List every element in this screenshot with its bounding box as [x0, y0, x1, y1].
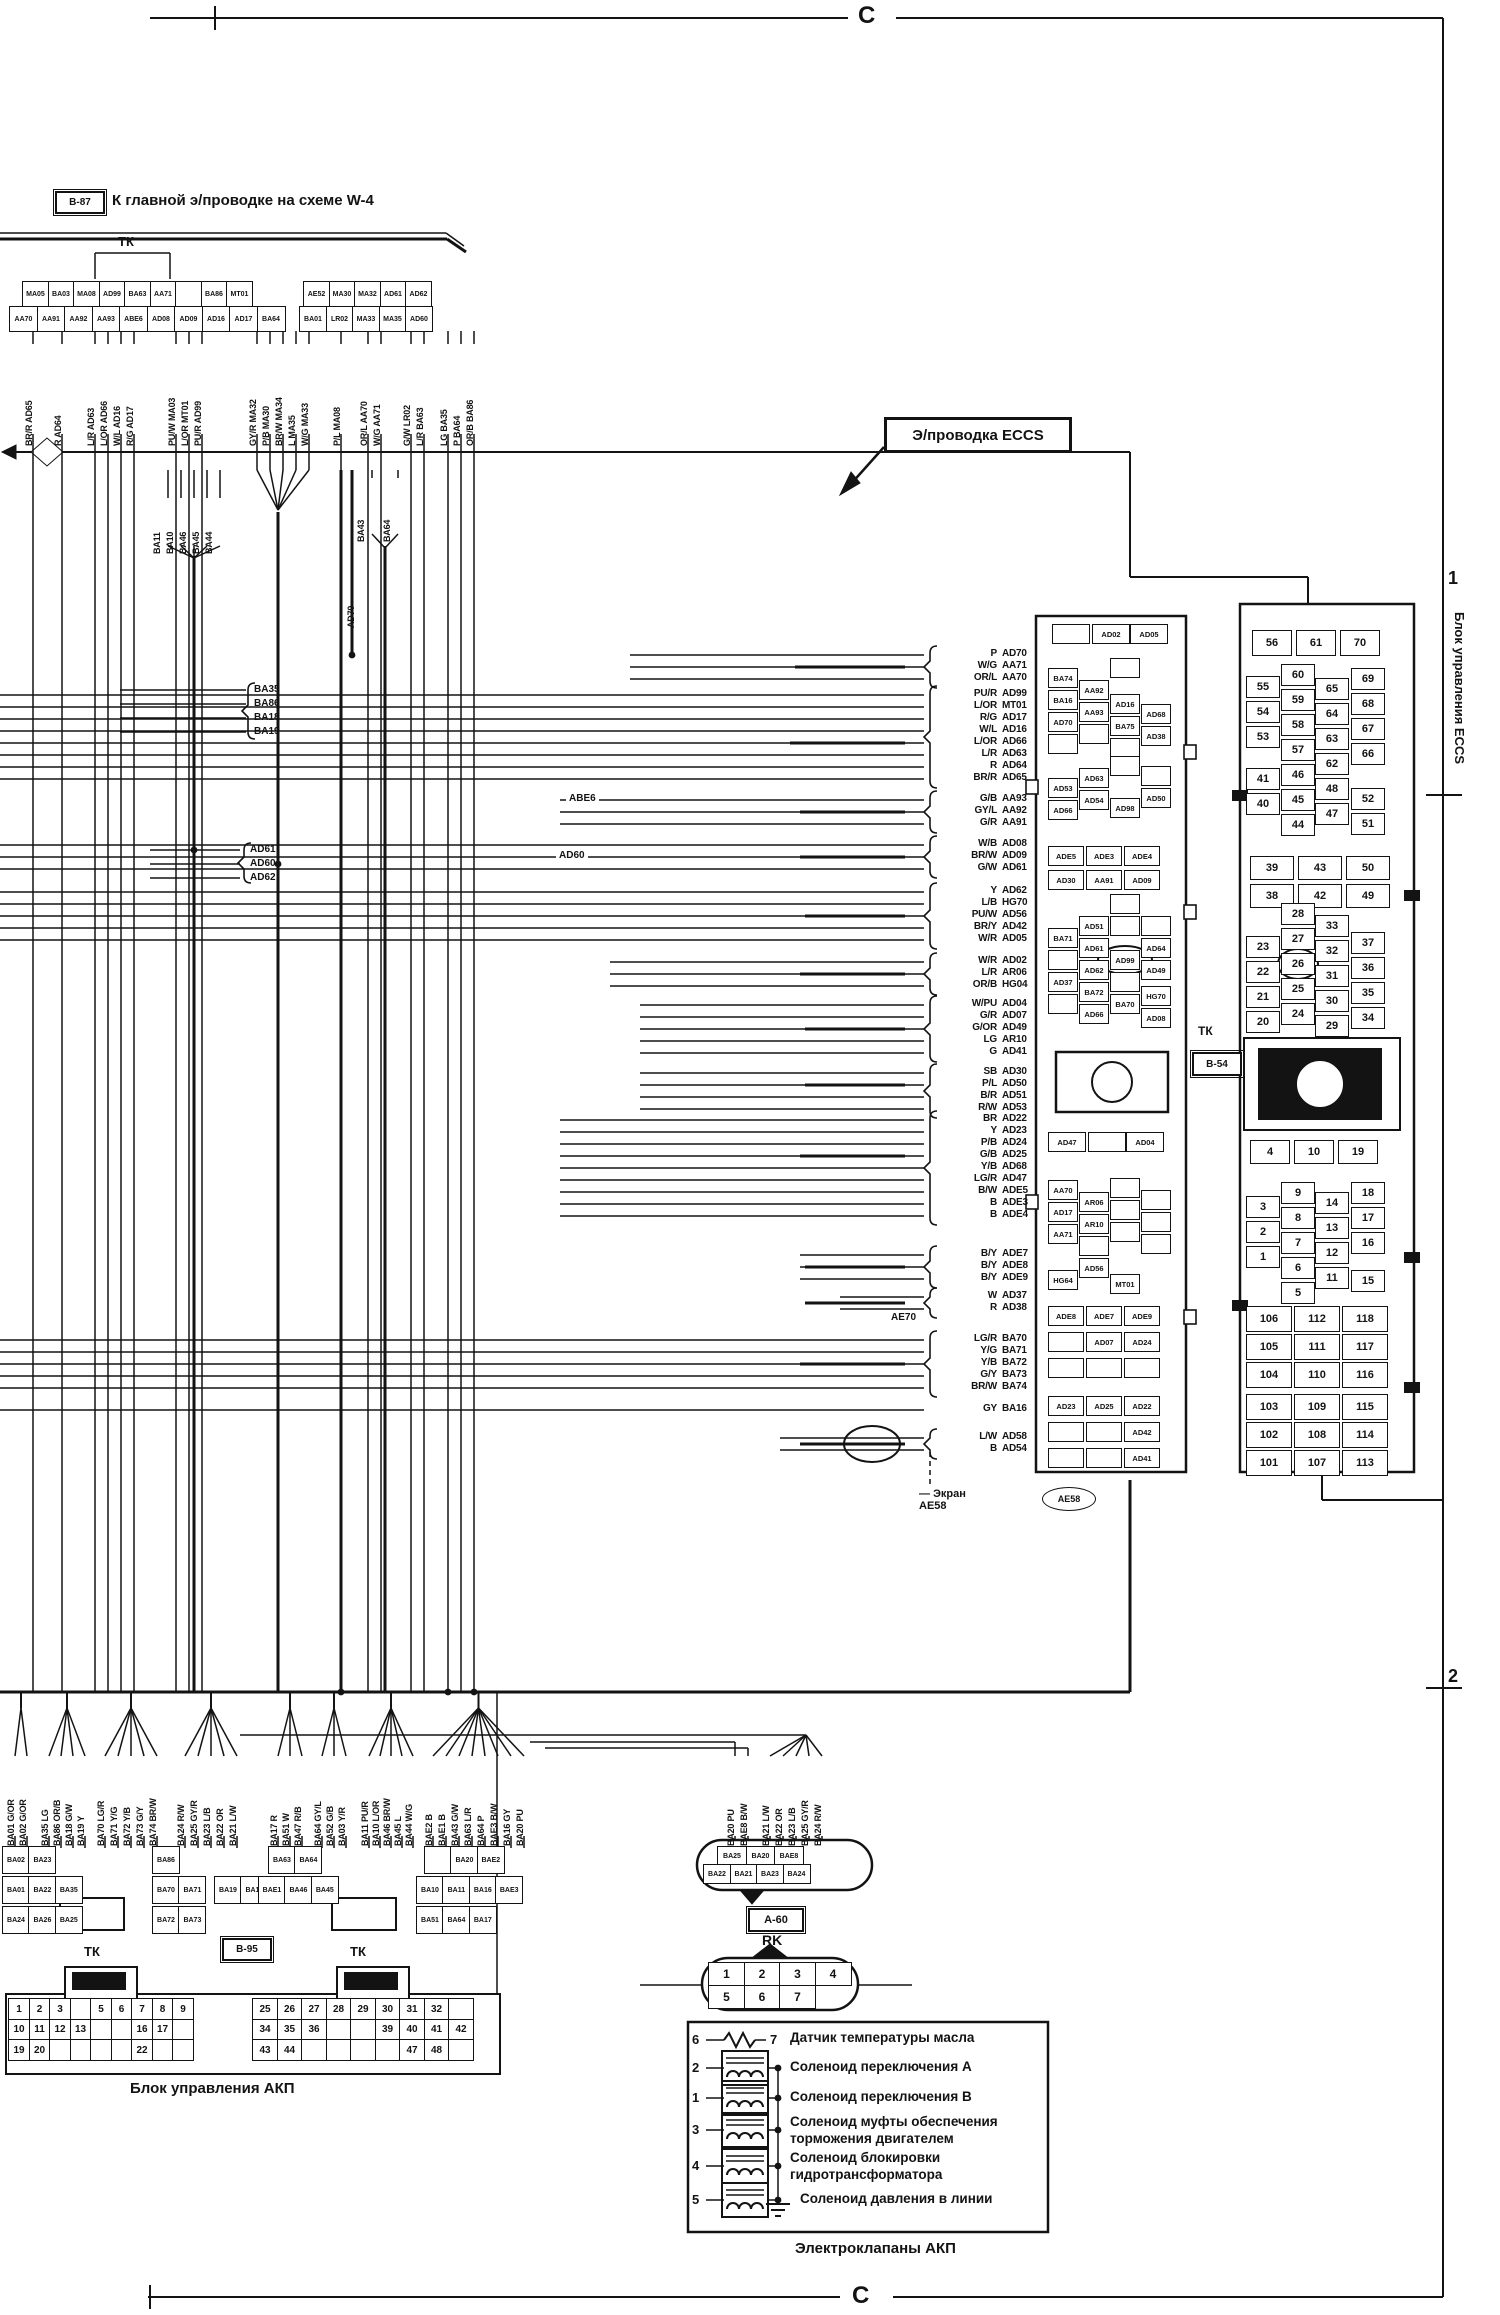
mid-wire-label: BA45	[191, 532, 201, 554]
ecu-connector-cell: AA92	[1079, 680, 1109, 700]
eccs-pin: 43	[1298, 856, 1342, 880]
wire-code: AR06	[1002, 967, 1040, 978]
mid-wire-label: AD60	[250, 858, 276, 869]
ecu-connector-cell: BA70	[1110, 994, 1140, 1014]
bottom-wire-label: BA20 PU	[726, 1809, 736, 1846]
main-harness-cell: MA32	[354, 281, 381, 307]
solenoid-pin-number: 2	[692, 2060, 699, 2075]
wire-code: B/Y	[981, 1248, 997, 1259]
main-harness-cell: AA92	[64, 306, 93, 332]
wire-code: Y/B	[981, 1161, 997, 1172]
bottom-connector-cell: BA19	[214, 1876, 242, 1904]
eccs-pin: 104	[1246, 1362, 1292, 1388]
akp-pin	[70, 1998, 92, 2020]
akp-pin	[350, 2019, 376, 2041]
akp-pin: 26	[277, 1998, 303, 2020]
eccs-pin: 36	[1351, 957, 1385, 979]
akp-pin	[375, 2039, 401, 2061]
akp-pin: 47	[399, 2039, 425, 2061]
ecu-connector-cell	[1110, 916, 1140, 936]
bottom-wire-label: BA17 R	[269, 1815, 279, 1846]
wire-code: G/R	[980, 1010, 997, 1021]
mid-wire-label: AD61	[250, 844, 276, 855]
eccs-wire-item: P/LAD50	[936, 1078, 1040, 1089]
ecu-connector-cell	[1141, 1190, 1171, 1210]
main-harness-cell: LR02	[326, 306, 354, 332]
bottom-wire-label: BA03 Y/R	[337, 1807, 347, 1846]
eccs-pin: 56	[1252, 630, 1292, 656]
bottom-wire-label: BA24 R/W	[176, 1805, 186, 1846]
wire-code: BA74	[1002, 1381, 1040, 1392]
ecu-connector-cell	[1110, 738, 1140, 758]
bottom-connector-cell: BA63	[268, 1846, 296, 1874]
eccs-pin: 108	[1294, 1422, 1340, 1448]
ecu-connector-cell	[1141, 916, 1171, 936]
wire-code: G/B	[980, 1149, 997, 1160]
tk-label-akp-right: ТК	[350, 1944, 366, 1959]
wire-code: GY	[983, 1403, 997, 1414]
eccs-pin: 15	[1351, 1270, 1385, 1292]
eccs-wire-item: G/RAA91	[936, 817, 1040, 828]
bottom-wire-label: BA23 L/B	[202, 1808, 212, 1846]
mid-wire-label: BA44	[204, 532, 214, 554]
eccs-wire-item: Y/BAD68	[936, 1161, 1040, 1172]
wire-code: R	[990, 1302, 997, 1313]
connector-key-fill	[72, 1972, 126, 1990]
wire-code: AD54	[1002, 1443, 1040, 1454]
eccs-pin: 106	[1246, 1306, 1292, 1332]
akp-pin	[301, 2039, 327, 2061]
eccs-pin: 3	[1246, 1196, 1280, 1218]
eccs-harness-note: Э/проводка ECCS	[884, 417, 1072, 453]
mid-wire-label: BA19	[254, 726, 280, 737]
bottom-wire-label: BA23 L/B	[787, 1808, 797, 1846]
top-wire-label: BR/W MA34	[274, 397, 284, 446]
eccs-pin: 54	[1246, 701, 1280, 723]
wire-code: AA91	[1002, 817, 1040, 828]
ecu-connector-cell	[1141, 1234, 1171, 1254]
grid-row-marker-1: 1	[1448, 568, 1458, 589]
ecu-connector-cell: AD63	[1079, 768, 1109, 788]
eccs-wire-item: RAD38	[936, 1302, 1040, 1313]
bottom-wire-label: BA63 L/R	[463, 1808, 473, 1846]
wire-code: W/PU	[972, 998, 997, 1009]
wire-code: LG/R	[974, 1173, 997, 1184]
wire-code: R/G	[980, 712, 997, 723]
main-harness-cell: AA91	[37, 306, 66, 332]
ecu-connector-cell: HG70	[1141, 986, 1171, 1006]
ecu-connector-cell	[1086, 1448, 1122, 1468]
wire-code: AD56	[1002, 909, 1040, 920]
wire-code: AD62	[1002, 885, 1040, 896]
solenoid-name: Датчик температуры масла	[790, 2030, 974, 2045]
ecu-connector-cell: AD98	[1110, 798, 1140, 818]
eccs-pin: 26	[1281, 953, 1315, 975]
wire-code: AD50	[1002, 1078, 1040, 1089]
ecu-connector-cell: AD22	[1124, 1396, 1160, 1416]
akp-pin: 16	[131, 2019, 153, 2041]
eccs-wire-item: YAD23	[936, 1125, 1040, 1136]
akp-pin: 8	[152, 1998, 174, 2020]
ecu-connector-cell: AD41	[1124, 1448, 1160, 1468]
eccs-pin: 103	[1246, 1394, 1292, 1420]
ecu-connector-cell	[1110, 1178, 1140, 1198]
top-wire-label: W/G AA71	[372, 404, 382, 446]
ecu-connector-cell: AD05	[1130, 624, 1168, 644]
eccs-wire-item: B/YADE7	[936, 1248, 1040, 1259]
main-harness-cell: AD61	[380, 281, 407, 307]
ecu-connector-cell: AR06	[1079, 1192, 1109, 1212]
wire-code: AA70	[1002, 672, 1040, 683]
wire-code: G/W	[978, 862, 997, 873]
wire-code: PU/R	[974, 688, 997, 699]
eccs-pin: 25	[1281, 978, 1315, 1000]
bottom-wire-label: BA21 L/W	[761, 1806, 771, 1846]
screen-shield-label: — Экран AE58	[916, 1488, 969, 1512]
wire-code: L/R	[981, 967, 997, 978]
eccs-wire-item: Y/GBA71	[936, 1345, 1040, 1356]
eccs-wire-item: B/RAD51	[936, 1090, 1040, 1101]
eccs-pin: 115	[1342, 1394, 1388, 1420]
wire-code: AD58	[1002, 1431, 1040, 1442]
eccs-wire-item: R/WAD53	[936, 1102, 1040, 1113]
ecu-connector-cell: AD49	[1141, 960, 1171, 980]
ecu-connector-cell	[1086, 1422, 1122, 1442]
eccs-pin: 112	[1294, 1306, 1340, 1332]
bottom-wire-label: BA86 OR/B	[52, 1800, 62, 1846]
wire-code: LG	[984, 1034, 998, 1045]
rk-cell: BAE8	[774, 1846, 804, 1866]
solenoid-pin-number: 5	[692, 2192, 699, 2207]
ecu-connector-cell: AD30	[1048, 870, 1084, 890]
ecu-connector-cell: AA93	[1079, 702, 1109, 722]
eccs-wire-item: G/BAA93	[936, 793, 1040, 804]
wire-code: W/B	[978, 838, 997, 849]
eccs-pin: 5	[1281, 1282, 1315, 1304]
wire-code: GY/L	[974, 805, 997, 816]
akp-unit-caption: Блок управления АКП	[130, 2080, 295, 2097]
rk-connector-label: RK	[762, 1932, 782, 1948]
eccs-pin: 2	[1246, 1221, 1280, 1243]
eccs-pin: 40	[1246, 793, 1280, 815]
eccs-pin: 68	[1351, 693, 1385, 715]
akp-pin: 44	[277, 2039, 303, 2061]
eccs-pin: 114	[1342, 1422, 1388, 1448]
ecu-connector-cell: AD02	[1092, 624, 1130, 644]
mid-wire-label: BA35	[254, 684, 280, 695]
eccs-pin: 30	[1315, 990, 1349, 1012]
wire-code: Y/G	[980, 1345, 997, 1356]
akp-pin: 32	[424, 1998, 450, 2020]
eccs-pin: 67	[1351, 718, 1385, 740]
main-harness-cell: MA08	[73, 281, 100, 307]
eccs-pin: 105	[1246, 1334, 1292, 1360]
bottom-connector-cell: BA51	[416, 1906, 444, 1934]
ecu-connector-cell: AD56	[1079, 1258, 1109, 1278]
ecu-connector-cell: BA16	[1048, 690, 1078, 710]
akp-pin: 39	[375, 2019, 401, 2041]
ecu-connector-cell	[1048, 734, 1078, 754]
wire-code: AD42	[1002, 921, 1040, 932]
eccs-pin: 55	[1246, 676, 1280, 698]
eccs-pin: 18	[1351, 1182, 1385, 1204]
akp-pin: 2	[29, 1998, 51, 2020]
ecu-connector-cell: AD62	[1079, 960, 1109, 980]
eccs-wire-item: GAD41	[936, 1046, 1040, 1057]
top-wire-label: L/R BA63	[415, 408, 425, 446]
rk-pin: 7	[779, 1985, 816, 2009]
akp-pin: 13	[70, 2019, 92, 2041]
wire-code: B/Y	[981, 1260, 997, 1271]
ecu-connector-cell	[1110, 756, 1140, 776]
main-harness-cell: AA71	[150, 281, 177, 307]
rk-cell: BA22	[703, 1864, 731, 1884]
ecu-connector-cell	[1048, 1448, 1084, 1468]
eccs-pin: 13	[1315, 1217, 1349, 1239]
eccs-wire-item: LG/RBA70	[936, 1333, 1040, 1344]
eccs-pin: 8	[1281, 1207, 1315, 1229]
ecu-connector-cell: AR10	[1079, 1214, 1109, 1234]
eccs-pin: 29	[1315, 1015, 1349, 1037]
bottom-wire-label: BA24 R/W	[813, 1805, 823, 1846]
wire-code: B	[990, 1197, 997, 1208]
wire-code: BR/W	[971, 850, 997, 861]
solenoid-pin-number: 7	[770, 2032, 777, 2047]
main-harness-cell: AD62	[405, 281, 432, 307]
wire-code: G/Y	[980, 1369, 997, 1380]
top-section-marker: C	[858, 2, 875, 30]
wire-code: P	[991, 648, 997, 659]
eccs-wire-item: SBAD30	[936, 1066, 1040, 1077]
bottom-wire-label: BA46 BR/W	[382, 1798, 392, 1846]
ecu-connector-cell	[1048, 1332, 1084, 1352]
eccs-pin: 111	[1294, 1334, 1340, 1360]
eccs-wire-item: PU/WAD56	[936, 909, 1040, 920]
bottom-wire-label: BA73 G/Y	[135, 1807, 145, 1846]
eccs-pin: 20	[1246, 1011, 1280, 1033]
wire-code: BR	[983, 1113, 997, 1124]
bottom-wire-label: BA16 GY	[502, 1809, 512, 1846]
top-wire-label: P/B MA30	[261, 406, 271, 446]
akp-pin: 25	[252, 1998, 278, 2020]
bottom-wire-label: BA35 LG	[40, 1809, 50, 1846]
main-harness-cell: MA33	[352, 306, 380, 332]
ecu-connector-cell: ADE9	[1124, 1306, 1160, 1326]
bottom-connector-cell: BA02	[2, 1846, 30, 1874]
wire-code: BA72	[1002, 1357, 1040, 1368]
bottom-connector-cell: BA64	[442, 1906, 470, 1934]
eccs-pin: 60	[1281, 664, 1315, 686]
bottom-wire-label: BA25 GY/R	[800, 1800, 810, 1846]
bottom-connector-cell: BA10	[416, 1876, 444, 1904]
eccs-wire-item: BADE4	[936, 1209, 1040, 1220]
eccs-wire-item: L/ORAD66	[936, 736, 1040, 747]
wire-code: AD49	[1002, 1022, 1040, 1033]
ecu-connector-cell: AD42	[1124, 1422, 1160, 1442]
ecu-connector-cell: AD47	[1048, 1132, 1086, 1152]
top-wire-label: P/L MA08	[332, 407, 342, 446]
bottom-connector-cell: BA73	[178, 1906, 206, 1934]
ecu-connector-cell: AD51	[1079, 916, 1109, 936]
wire-code: ADE8	[1002, 1260, 1040, 1271]
bottom-connector-cell: BA45	[311, 1876, 339, 1904]
reference-box-b87: B-87	[55, 191, 105, 214]
bottom-connector-cell: BAE3	[495, 1876, 523, 1904]
ecu-connector-cell: ADE7	[1086, 1306, 1122, 1326]
grid-row-marker-2: 2	[1448, 1666, 1458, 1687]
wire-code: Y	[991, 1125, 997, 1136]
bottom-connector-cell: BA71	[178, 1876, 206, 1904]
bottom-connector-cell: BA46	[284, 1876, 312, 1904]
wire-code: MT01	[1002, 700, 1040, 711]
eccs-pin: 11	[1315, 1267, 1349, 1289]
eccs-pin: 28	[1281, 903, 1315, 925]
ecu-connector-cell: AD09	[1124, 870, 1160, 890]
wire-code: AR10	[1002, 1034, 1040, 1045]
top-wire-label: L MA35	[287, 415, 297, 446]
ecu-connector-cell	[1110, 1200, 1140, 1220]
ecu-connector-cell: AD07	[1086, 1332, 1122, 1352]
wire-code: AD02	[1002, 955, 1040, 966]
ecu-connector-cell: MT01	[1110, 1274, 1140, 1294]
eccs-pin: 33	[1315, 915, 1349, 937]
eccs-pin: 49	[1346, 884, 1390, 908]
wire-code: AD08	[1002, 838, 1040, 849]
eccs-pin: 63	[1315, 728, 1349, 750]
eccs-wire-item: W/BAD08	[936, 838, 1040, 849]
bottom-section-marker: C	[852, 2282, 869, 2310]
bottom-connector-cell: BAE2	[477, 1846, 505, 1874]
solenoid-pin-number: 1	[692, 2090, 699, 2105]
bottom-wire-label: BA47 R/B	[293, 1807, 303, 1846]
bottom-wire-label: BA52 G/B	[325, 1806, 335, 1846]
bottom-connector-cell: BA22	[28, 1876, 56, 1904]
eccs-pin: 39	[1250, 856, 1294, 880]
bottom-connector-cell: BAE1	[258, 1876, 286, 1904]
akp-pin: 42	[448, 2019, 474, 2041]
eccs-pin: 7	[1281, 1232, 1315, 1254]
eccs-pin: 53	[1246, 726, 1280, 748]
eccs-pin: 117	[1342, 1334, 1388, 1360]
wire-code: ADE3	[1002, 1197, 1040, 1208]
wire-code: L/OR	[974, 736, 997, 747]
mid-wire-label: AD62	[250, 872, 276, 883]
akp-pin: 36	[301, 2019, 327, 2041]
eccs-pin: 57	[1281, 739, 1315, 761]
wire-code: BA71	[1002, 1345, 1040, 1356]
bottom-connector-cell: BA35	[55, 1876, 83, 1904]
wire-code: AD38	[1002, 1302, 1040, 1313]
rk-pin: 2	[744, 1962, 781, 1986]
wire-code: BA16	[1002, 1403, 1040, 1414]
ecu-connector-cell: AD68	[1141, 704, 1171, 724]
eccs-wire-item: R/GAD17	[936, 712, 1040, 723]
eccs-pin: 6	[1281, 1257, 1315, 1279]
eccs-pin: 37	[1351, 932, 1385, 954]
eccs-pin: 50	[1346, 856, 1390, 880]
akp-pin: 27	[301, 1998, 327, 2020]
ecu-connector-cell: AA91	[1086, 870, 1122, 890]
eccs-pin: 64	[1315, 703, 1349, 725]
bottom-connector-cell: BA24	[2, 1906, 30, 1934]
eccs-wire-item: YAD62	[936, 885, 1040, 896]
eccs-pin: 48	[1315, 778, 1349, 800]
eccs-pin: 17	[1351, 1207, 1385, 1229]
akp-pin: 10	[8, 2019, 30, 2041]
wire-code: B/R	[980, 1090, 997, 1101]
eccs-pin: 47	[1315, 803, 1349, 825]
reference-box-b95: B-95	[222, 1938, 272, 1961]
bottom-wire-label: BA22 OR	[215, 1808, 225, 1846]
eccs-pin: 44	[1281, 814, 1315, 836]
ecu-connector-cell: BA74	[1048, 668, 1078, 688]
mid-wire-label: BA11	[152, 532, 162, 554]
ecu-connector-cell: AD37	[1048, 972, 1078, 992]
mid-wire-label: BA43	[356, 520, 366, 542]
main-harness-cell: AD17	[229, 306, 258, 332]
wire-code: AD63	[1002, 748, 1040, 759]
akp-pin: 7	[131, 1998, 153, 2020]
bottom-wire-label: BA21 L/W	[228, 1806, 238, 1846]
wire-code: AD24	[1002, 1137, 1040, 1148]
bottom-wire-label: BA74 BR/W	[148, 1798, 158, 1846]
akp-pin: 48	[424, 2039, 450, 2061]
wire-code: Y/B	[981, 1357, 997, 1368]
ecu-connector-cell	[1048, 994, 1078, 1014]
bottom-wire-label: BA64 GY/L	[313, 1801, 323, 1846]
eccs-pin: 101	[1246, 1450, 1292, 1476]
eccs-pin: 19	[1338, 1140, 1378, 1164]
main-harness-cell: AE52	[303, 281, 330, 307]
top-wire-label: PU/W MA03	[167, 398, 177, 446]
eccs-wire-item: PAD70	[936, 648, 1040, 659]
eccs-wire-item: BR/WBA74	[936, 1381, 1040, 1392]
main-harness-cell: AD60	[405, 306, 433, 332]
wire-code: AA71	[1002, 660, 1040, 671]
wire-code: L/W	[979, 1431, 997, 1442]
ecu-connector-cell	[1124, 1358, 1160, 1378]
wire-code: G/B	[980, 793, 997, 804]
bottom-connector-cell: BA17	[469, 1906, 497, 1934]
ecu-connector-cell	[1048, 1422, 1084, 1442]
wire-code: AD07	[1002, 1010, 1040, 1021]
main-harness-cell: BA86	[201, 281, 228, 307]
page-title: К главной э/проводке на схеме W-4	[112, 192, 374, 209]
ecu-connector-cell: AD54	[1079, 790, 1109, 810]
wire-code: AD37	[1002, 1290, 1040, 1301]
eccs-pin: 22	[1246, 961, 1280, 983]
bottom-connector-cell: BA16	[469, 1876, 497, 1904]
wire-code: BA70	[1002, 1333, 1040, 1344]
wire-code: AD65	[1002, 772, 1040, 783]
eccs-wire-item: L/RAR06	[936, 967, 1040, 978]
wire-code: SB	[984, 1066, 998, 1077]
bottom-wire-label: BA10 L/OR	[371, 1801, 381, 1846]
eccs-pin: 102	[1246, 1422, 1292, 1448]
main-harness-cell: ABE6	[119, 306, 148, 332]
eccs-wire-item: W/PUAD04	[936, 998, 1040, 1009]
rk-pin: 6	[744, 1985, 781, 2009]
eccs-pin: 10	[1294, 1140, 1334, 1164]
ecu-connector-cell: ADE4	[1124, 846, 1160, 866]
top-wire-label: L/OR AD66	[99, 401, 109, 446]
ecu-connector-cell: AD64	[1141, 938, 1171, 958]
mid-wire-label: AD70	[346, 606, 356, 628]
eccs-pin: 116	[1342, 1362, 1388, 1388]
akp-pin	[49, 2039, 71, 2061]
eccs-pin: 27	[1281, 928, 1315, 950]
eccs-wire-item: BADE3	[936, 1197, 1040, 1208]
